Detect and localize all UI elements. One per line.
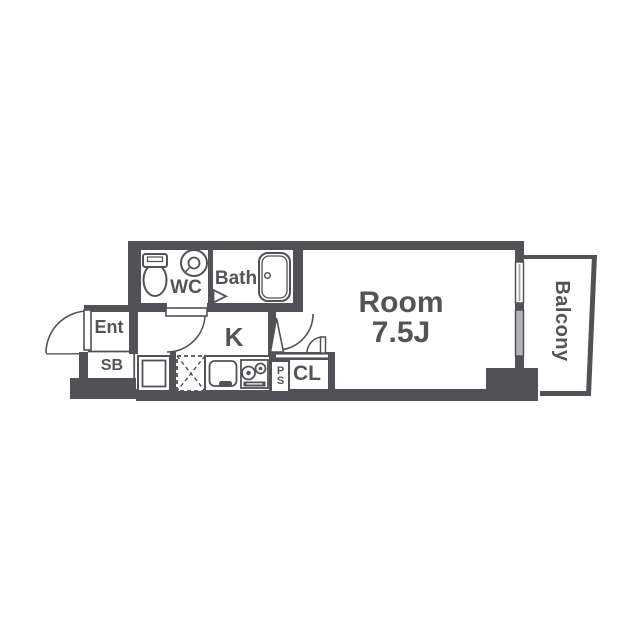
floorplan-canvas: WC Bath Ent SB K CL PS Room 7.5J Balcony (0, 0, 640, 640)
entrance-label: Ent (84, 318, 134, 338)
entrance-door-arc (46, 311, 88, 353)
toilet-tank-lid (148, 257, 163, 262)
bath-door-marker (214, 290, 227, 303)
window-panel-lower (516, 310, 524, 356)
wall-wc-left (128, 250, 141, 305)
window-center-divider (515, 303, 524, 310)
kitchen-sink-icon (210, 361, 237, 387)
wall-ent-top (84, 305, 141, 312)
wall-bottom-left-block (70, 378, 136, 399)
bath-label: Bath (206, 269, 266, 290)
wall-ent-left-lower (79, 352, 88, 378)
refrigerator-space-icon (177, 356, 205, 391)
balcony-wall-bottom (540, 391, 591, 396)
wall-cl-top-inner (272, 357, 330, 360)
window-panel-upper-glass-line (519, 264, 521, 301)
pipe-space-label: PS (275, 366, 286, 386)
washing-machine-space-icon (138, 356, 170, 391)
wall-wc-bottom-left (141, 303, 167, 312)
gas-stove-icon (241, 360, 268, 388)
room-label: Room (331, 286, 471, 319)
wall-window-stub-top (515, 250, 524, 262)
shoe-box-label: SB (92, 357, 132, 375)
stove-burner-right-center (259, 367, 263, 371)
pillar-bottom-right (486, 368, 538, 401)
wc-door-leaf (166, 308, 207, 316)
stove-burner-left-center (246, 371, 250, 375)
sink-faucet (219, 381, 232, 387)
balcony-wall-right (586, 255, 597, 395)
wall-bath-right (293, 250, 303, 303)
wc-door-arc (167, 314, 205, 352)
closet-door-leaf (321, 337, 326, 353)
wc-label: WC (161, 278, 211, 299)
balcony-label: Balcony (549, 266, 573, 376)
room-size-label: 7.5J (331, 316, 471, 349)
kitchen-counter (205, 356, 270, 391)
wall-bath-bottom (207, 303, 303, 312)
basin-drain (189, 258, 200, 269)
kitchen-label: K (214, 323, 254, 352)
balcony-wall-top (523, 255, 597, 259)
wall-window-stub-bottom (515, 356, 524, 370)
wall-top (128, 241, 524, 250)
stove-grill-slot (247, 383, 263, 384)
hand-basin-icon (181, 250, 207, 276)
closet-label: CL (285, 362, 329, 385)
